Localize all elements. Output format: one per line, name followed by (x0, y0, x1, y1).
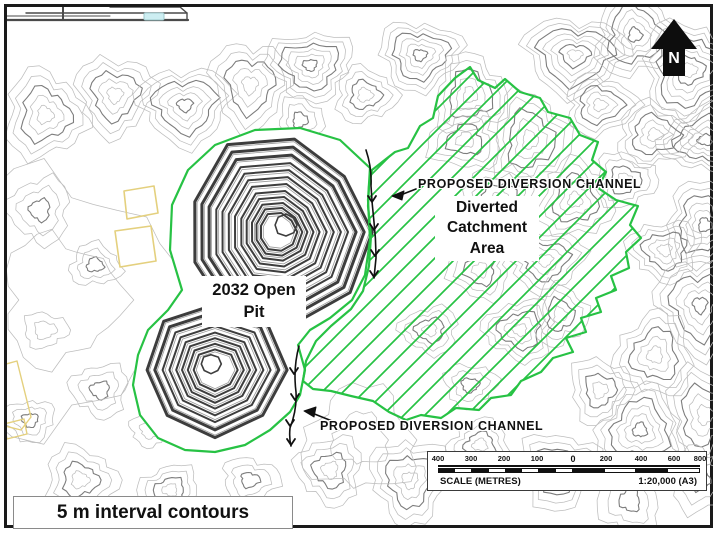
scale-tick: 400 (635, 454, 648, 463)
scale-tick: 400 (432, 454, 445, 463)
open-pit-label: 2032 Open Pit (202, 276, 306, 327)
scale-tick: 300 (465, 454, 478, 463)
scale-segment (636, 468, 668, 473)
scale-tick: 800 (694, 454, 707, 463)
scale-segment (455, 468, 472, 473)
scale-segment (489, 468, 506, 473)
scale-segment (668, 468, 700, 473)
scale-tick: 100 (531, 454, 544, 463)
scale-segment (539, 468, 556, 473)
scale-bar-title: SCALE (METRES) (440, 476, 521, 487)
water-feature (144, 13, 164, 20)
infrastructure-layer (4, 2, 188, 20)
scale-segment (506, 468, 523, 473)
diverted-catchment-area-label: Diverted Catchment Area (435, 196, 539, 261)
north-arrow-label: N (668, 50, 680, 67)
north-arrow: N (651, 19, 697, 76)
contour-interval-note: 5 m interval contours displayed (13, 496, 293, 529)
scale-segment (522, 468, 539, 473)
scale-tick: 200 (498, 454, 511, 463)
proposed-diversion-channel-label-bottom: PROPOSED DIVERSION CHANNEL (320, 419, 543, 433)
scale-bar-segments-right (573, 468, 700, 473)
scale-segment (438, 468, 455, 473)
scale-segment (472, 468, 489, 473)
scale-segment (605, 468, 637, 473)
scale-tick: 600 (668, 454, 681, 463)
scale-tick: 200 (600, 454, 613, 463)
scale-bar-line (438, 465, 700, 467)
map-figure: N PROPOSED DIVERSION CHANNEL PROPOSED DI… (0, 0, 720, 535)
scale-bar-segments-left (438, 468, 573, 473)
scale-bar-ratio: 1:20,000 (A3) (638, 476, 697, 487)
scale-tick-zero: 0 (570, 454, 575, 464)
scale-bar: 400 300 200 100 0 200 400 600 800 SCALE … (427, 451, 707, 491)
scale-segment (556, 468, 573, 473)
scale-segment (573, 468, 605, 473)
proposed-diversion-channel-label-top: PROPOSED DIVERSION CHANNEL (418, 177, 641, 191)
